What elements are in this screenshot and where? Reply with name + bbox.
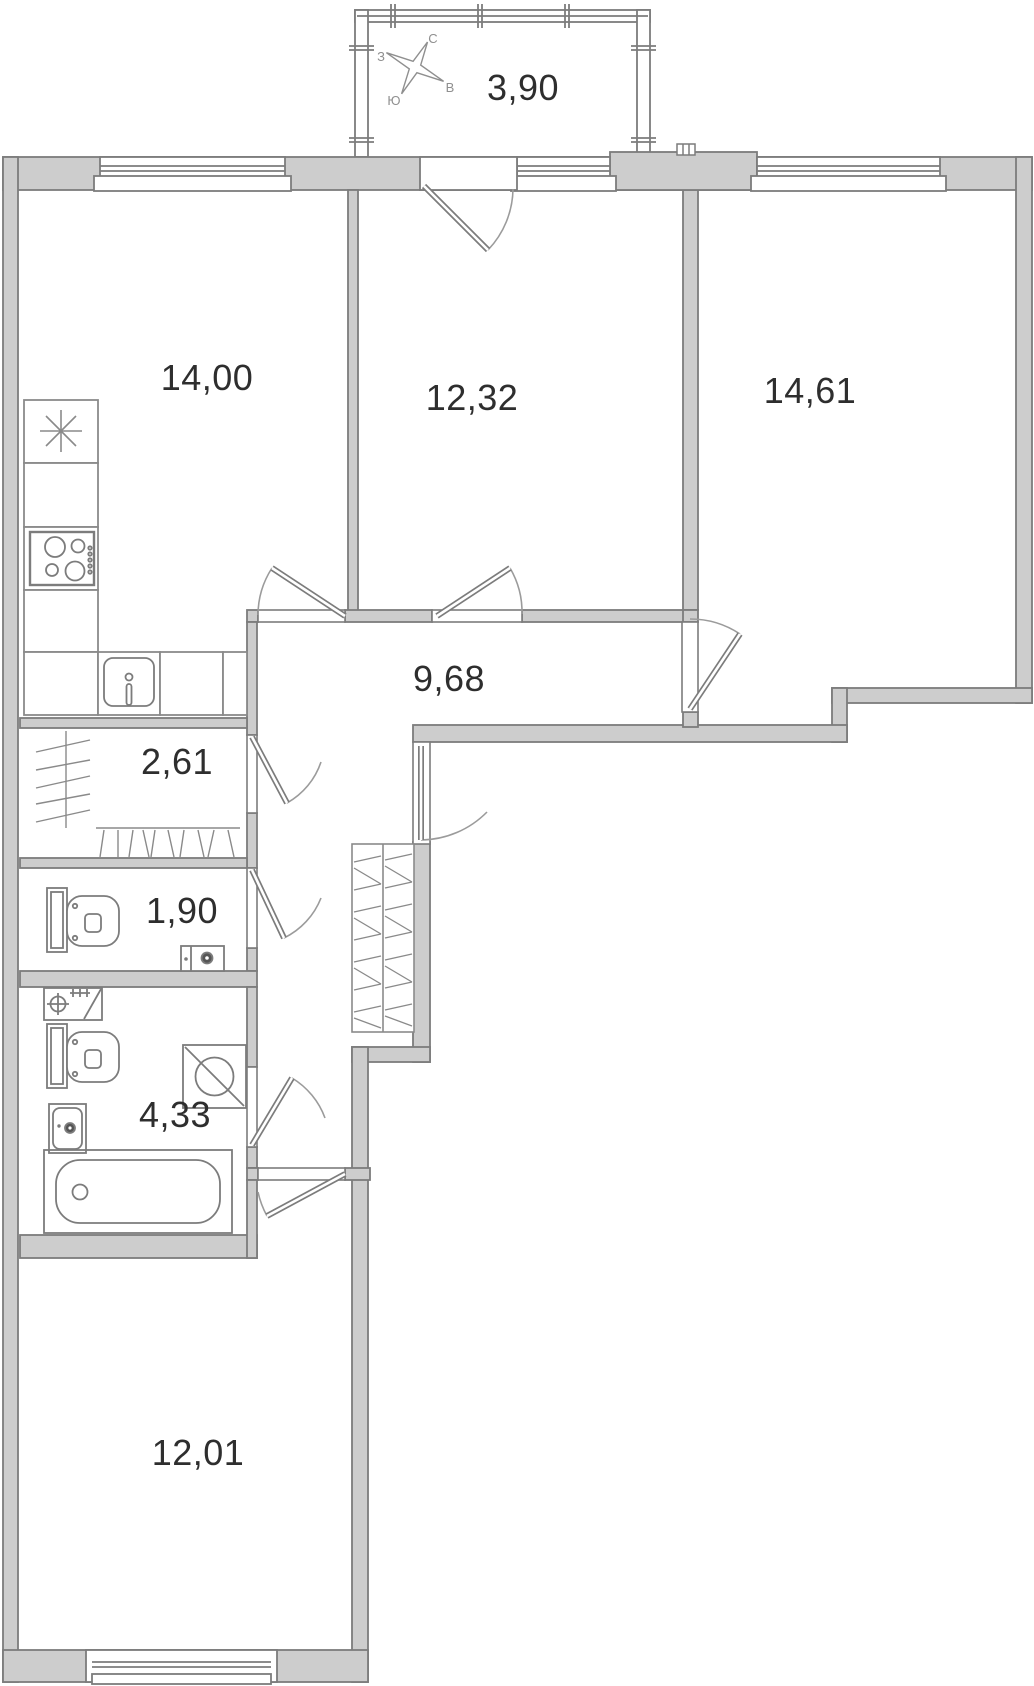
balcony-door bbox=[420, 157, 517, 250]
floor-plan: С З В Ю bbox=[0, 0, 1034, 1686]
room-1232-window bbox=[511, 157, 616, 191]
bathroom-door bbox=[247, 1067, 325, 1147]
bathroom-toilet-symbol bbox=[47, 1024, 119, 1088]
bathroom-area-label: 4,33 bbox=[139, 1094, 211, 1135]
room-1201-door bbox=[258, 1168, 345, 1216]
washbasin-symbol bbox=[44, 988, 102, 1020]
small-basin-symbol bbox=[49, 1104, 86, 1153]
room-1201-window bbox=[86, 1650, 277, 1684]
kitchen-area-label: 14,00 bbox=[161, 357, 254, 398]
room-1461-area-label: 14,61 bbox=[764, 370, 857, 411]
kitchen-door bbox=[258, 568, 345, 622]
kitchen-window bbox=[94, 157, 291, 191]
balcony-area-label: 3,90 bbox=[487, 67, 559, 108]
closet-shelves-symbol bbox=[36, 731, 90, 828]
wc-sink-symbol bbox=[181, 946, 224, 971]
room-1232-area-label: 12,32 bbox=[426, 377, 519, 418]
closet-area-label: 2,61 bbox=[141, 741, 213, 782]
room-1232-door bbox=[432, 568, 522, 622]
compass-star-icon bbox=[386, 42, 443, 94]
hallway-area-label: 9,68 bbox=[413, 658, 485, 699]
compass-rose: С З В Ю bbox=[377, 31, 454, 108]
doors bbox=[247, 157, 740, 1216]
bathtub-symbol bbox=[44, 1150, 232, 1233]
compass-west-label: З bbox=[377, 49, 385, 64]
kitchen-fixtures bbox=[24, 400, 247, 715]
wc-area-label: 1,90 bbox=[146, 890, 218, 931]
entrance-door bbox=[413, 742, 487, 844]
room-1461-door bbox=[682, 619, 740, 712]
fridge-symbol bbox=[40, 410, 82, 452]
compass-north-label: С bbox=[428, 31, 437, 46]
closet-hanger-symbol bbox=[96, 828, 240, 857]
vent-symbol bbox=[677, 144, 695, 155]
compass-south-label: Ю bbox=[387, 93, 400, 108]
room-1461-window bbox=[751, 157, 946, 191]
room-1201-area-label: 12,01 bbox=[152, 1432, 245, 1473]
wc-door bbox=[247, 868, 321, 948]
compass-east-label: В bbox=[446, 80, 455, 95]
closet-door bbox=[247, 735, 321, 813]
wc-toilet-symbol bbox=[47, 888, 119, 952]
hallway-wardrobe-symbol bbox=[352, 844, 414, 1032]
